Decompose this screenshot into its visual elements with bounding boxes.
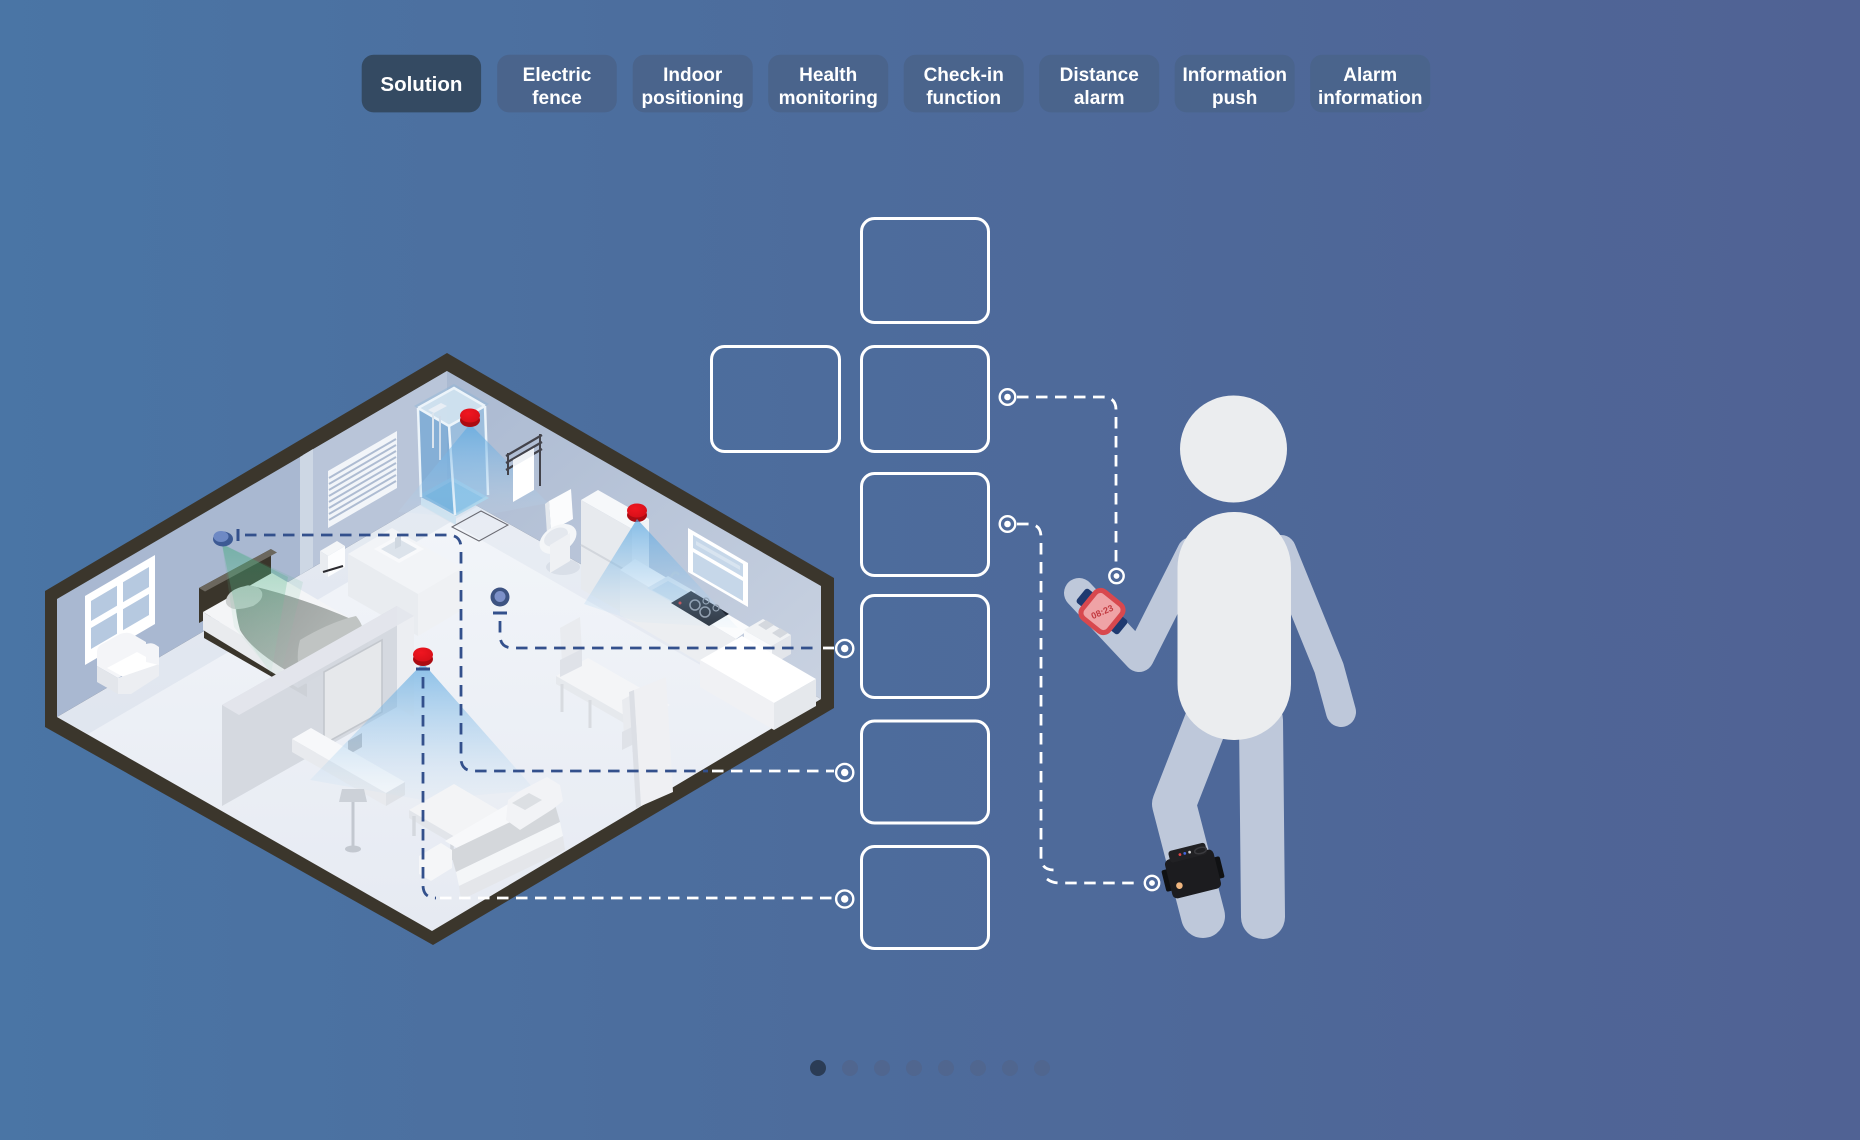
svg-text:Indoor: Indoor: [663, 65, 723, 86]
svg-text:Health: Health: [799, 65, 857, 86]
svg-text:positioning: positioning: [642, 88, 744, 109]
svg-text:alarm: alarm: [1074, 88, 1125, 109]
svg-text:monitoring: monitoring: [779, 88, 878, 109]
svg-text:push: push: [1212, 88, 1257, 109]
svg-text:information: information: [1318, 88, 1423, 109]
svg-text:Check-in: Check-in: [924, 65, 1004, 86]
svg-text:Electric: Electric: [523, 65, 592, 86]
svg-text:Distance: Distance: [1060, 65, 1139, 86]
svg-text:Information: Information: [1182, 65, 1287, 86]
svg-text:Alarm: Alarm: [1343, 65, 1397, 86]
svg-text:fence: fence: [532, 88, 582, 109]
svg-text:Solution: Solution: [380, 73, 462, 96]
svg-text:function: function: [926, 88, 1001, 109]
